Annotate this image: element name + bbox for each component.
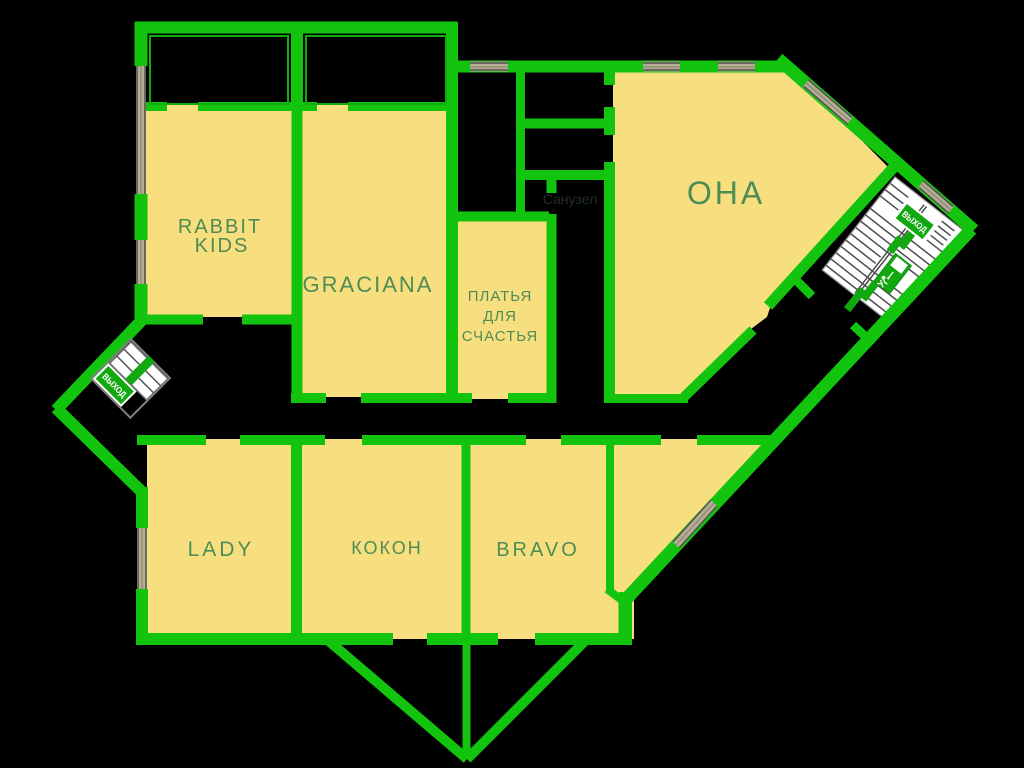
svg-text:KIDS: KIDS [195,235,250,257]
svg-text:BRAVO: BRAVO [496,539,580,561]
svg-text:ДЛЯ: ДЛЯ [483,308,517,325]
svg-text:КОКОН: КОКОН [351,538,423,558]
svg-text:СЧАСТЬЯ: СЧАСТЬЯ [462,328,539,345]
svg-text:Санузел: Санузел [543,191,598,207]
svg-text:ПЛАТЬЯ: ПЛАТЬЯ [468,288,533,305]
svg-text:ОНА: ОНА [687,175,765,211]
svg-text:GRACIANA: GRACIANA [303,272,434,297]
svg-text:LADY: LADY [188,538,255,561]
